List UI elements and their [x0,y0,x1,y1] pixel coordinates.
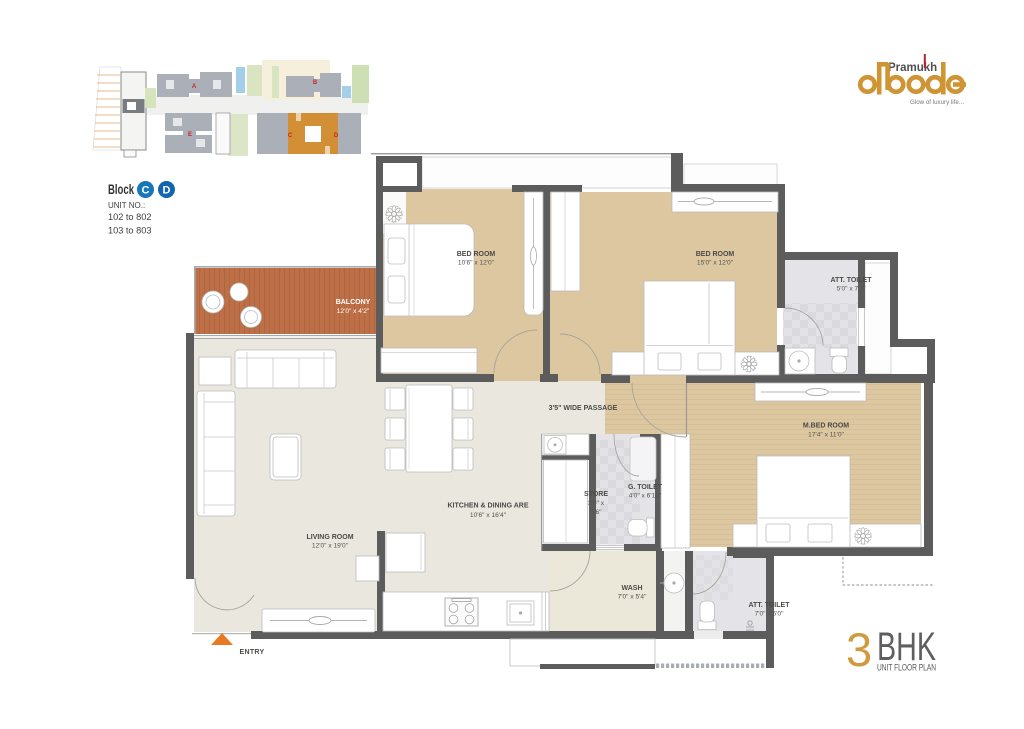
svg-text:12'0" x 19'0": 12'0" x 19'0" [312,543,349,550]
svg-text:ATT. TOILET: ATT. TOILET [831,277,873,284]
svg-text:10'6" x 12'0": 10'6" x 12'0" [458,260,495,267]
svg-text:A: A [192,84,197,90]
svg-text:3'5" WIDE PASSAGE: 3'5" WIDE PASSAGE [549,405,618,412]
svg-text:12'0" x 4'2": 12'0" x 4'2" [337,308,370,315]
svg-text:7'0" x 5'4": 7'0" x 5'4" [618,594,647,601]
svg-text:ATT. TOILET: ATT. TOILET [749,602,791,609]
svg-text:BED ROOM: BED ROOM [696,251,735,258]
svg-text:D: D [334,133,339,139]
svg-text:G. TOILET: G. TOILET [628,484,663,491]
svg-text:C: C [142,185,150,197]
svg-text:3: 3 [846,623,872,676]
svg-text:103 to 803: 103 to 803 [108,226,151,236]
svg-text:102 to 802: 102 to 802 [108,212,151,222]
svg-text:10'6" x 16'4": 10'6" x 16'4" [470,512,507,519]
svg-text:Glow of luxury life...: Glow of luxury life... [910,99,964,106]
svg-text:KITCHEN & DINING ARE: KITCHEN & DINING ARE [447,503,528,510]
svg-text:M.BED ROOM: M.BED ROOM [803,423,849,430]
svg-text:BALCONY: BALCONY [336,299,371,306]
svg-text:STORE: STORE [584,491,608,498]
svg-text:4'0" x 6'10": 4'0" x 6'10" [629,493,662,500]
svg-text:5'0" x 7'7": 5'0" x 7'7" [837,286,866,293]
svg-text:B: B [313,80,318,86]
svg-text:ENTRY: ENTRY [240,649,265,656]
svg-text:Pramukh: Pramukh [888,62,937,74]
svg-text:E: E [188,132,192,138]
svg-text:5'6": 5'6" [591,509,603,516]
svg-text:BED ROOM: BED ROOM [457,251,496,258]
svg-text:UNIT NO.:: UNIT NO.: [108,201,145,210]
svg-text:7'0" x 5'0": 7'0" x 5'0" [755,611,784,618]
svg-text:Block: Block [108,181,134,197]
svg-text:17'4" x 11'0": 17'4" x 11'0" [808,432,844,439]
svg-text:WASH: WASH [622,585,643,592]
svg-text:UNIT FLOOR PLAN: UNIT FLOOR PLAN [877,663,936,673]
svg-text:C: C [288,133,293,139]
svg-text:D: D [163,185,171,197]
svg-text:LIVING ROOM: LIVING ROOM [306,534,353,541]
svg-text:15'0" x 12'0": 15'0" x 12'0" [697,260,734,267]
svg-text:3'0" x: 3'0" x [588,500,605,507]
